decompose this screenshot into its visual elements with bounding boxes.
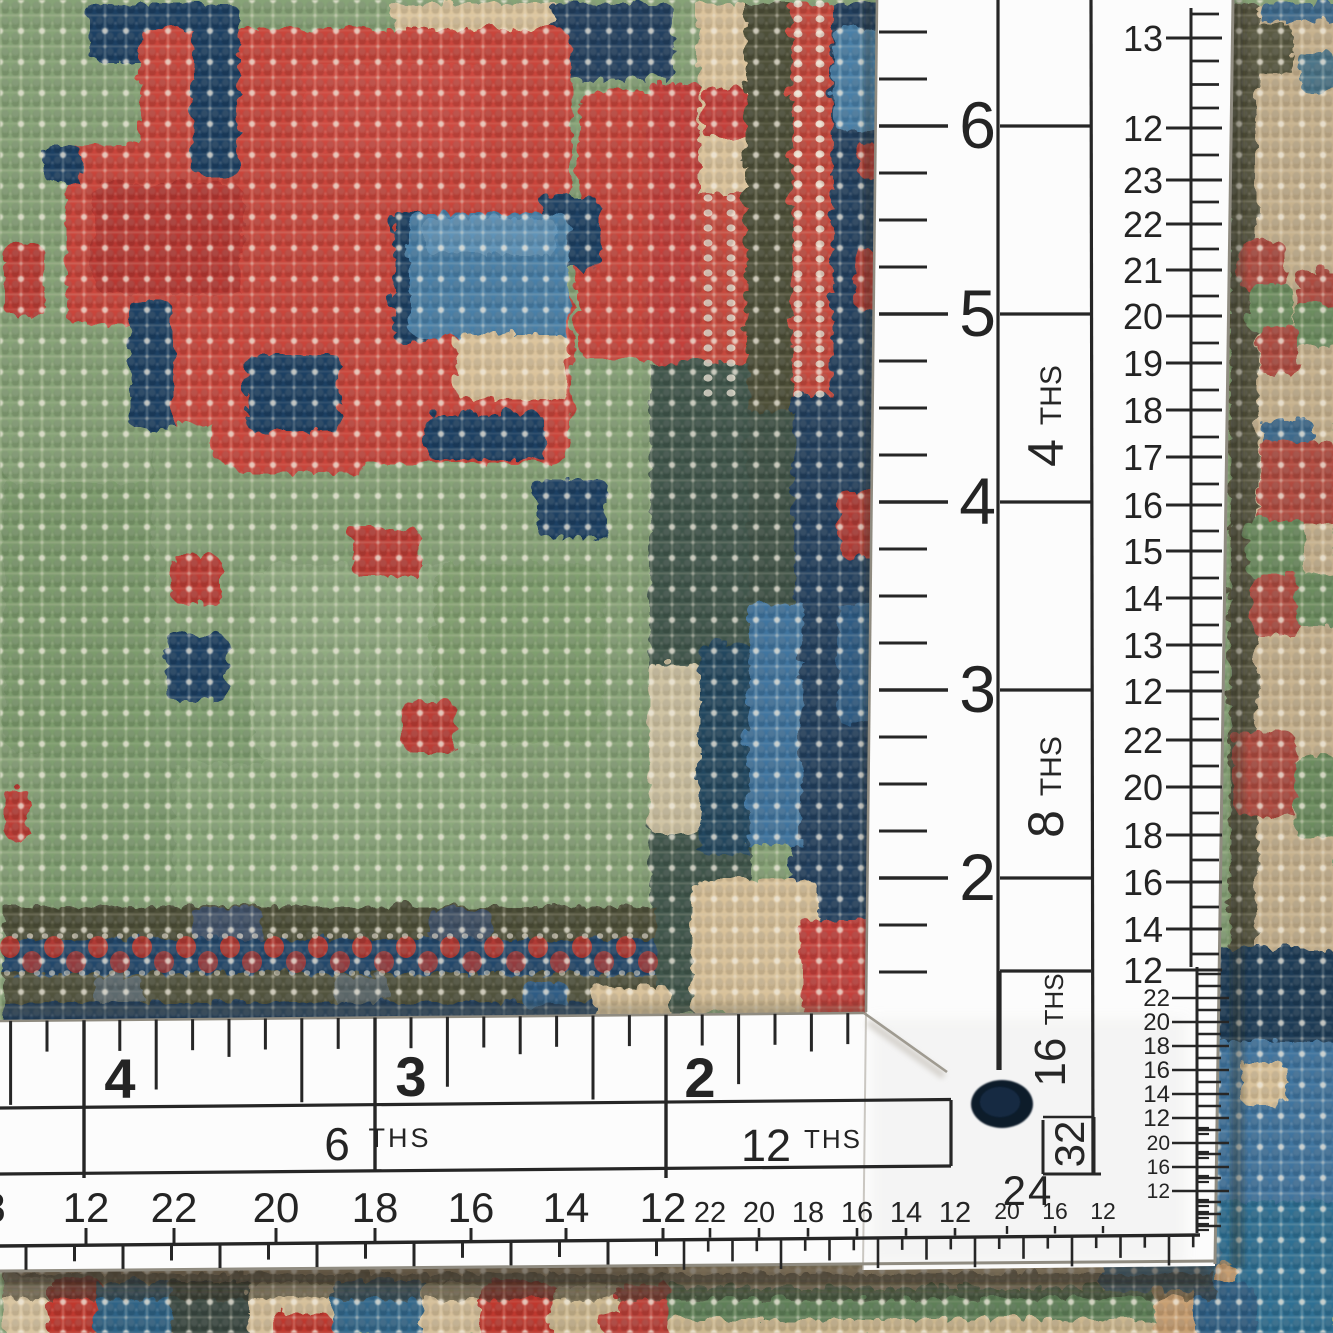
svg-text:14: 14 [1123, 578, 1163, 619]
svg-text:20: 20 [1143, 1009, 1170, 1036]
svg-text:22: 22 [1123, 204, 1163, 245]
svg-text:14: 14 [1123, 909, 1163, 950]
svg-text:18: 18 [352, 1184, 399, 1231]
svg-text:13: 13 [1123, 18, 1163, 59]
svg-text:THS: THS [369, 1123, 432, 1153]
svg-text:22: 22 [694, 1197, 726, 1229]
svg-text:18: 18 [792, 1197, 824, 1229]
svg-text:16: 16 [841, 1197, 873, 1229]
svg-text:6: 6 [324, 1118, 350, 1170]
svg-text:12: 12 [741, 1120, 791, 1171]
svg-text:19: 19 [1123, 343, 1163, 384]
svg-text:4: 4 [959, 464, 996, 538]
svg-text:8: 8 [0, 1184, 6, 1231]
svg-text:5: 5 [959, 276, 996, 350]
svg-text:16: 16 [1143, 1057, 1170, 1084]
svg-text:20: 20 [1123, 767, 1163, 808]
svg-text:20: 20 [1123, 296, 1163, 337]
svg-text:23: 23 [1123, 160, 1163, 201]
svg-text:12: 12 [1090, 1198, 1116, 1224]
svg-text:14: 14 [543, 1184, 590, 1231]
svg-text:18: 18 [1143, 1033, 1170, 1060]
svg-text:13: 13 [1123, 625, 1163, 666]
svg-text:20: 20 [1147, 1132, 1170, 1155]
svg-text:22: 22 [1123, 720, 1163, 761]
svg-text:12: 12 [939, 1197, 971, 1229]
svg-text:20: 20 [743, 1197, 775, 1229]
svg-text:22: 22 [151, 1184, 198, 1231]
svg-text:2: 2 [684, 1046, 715, 1109]
svg-text:16: 16 [1123, 485, 1163, 526]
svg-text:6: 6 [959, 88, 996, 162]
svg-text:12: 12 [63, 1184, 110, 1231]
svg-text:16: 16 [448, 1184, 495, 1231]
svg-text:THS: THS [804, 1124, 862, 1154]
svg-text:17: 17 [1123, 437, 1163, 478]
svg-text:4: 4 [104, 1047, 135, 1110]
svg-text:3: 3 [395, 1045, 426, 1108]
svg-text:20: 20 [253, 1184, 300, 1231]
svg-text:15: 15 [1123, 531, 1163, 572]
svg-text:12: 12 [1123, 108, 1163, 149]
svg-text:18: 18 [1123, 390, 1163, 431]
svg-text:12: 12 [1123, 671, 1163, 712]
svg-text:12: 12 [1143, 1105, 1170, 1132]
svg-text:3: 3 [959, 652, 996, 726]
svg-text:14: 14 [1143, 1081, 1170, 1108]
svg-text:16: 16 [1147, 1156, 1170, 1179]
svg-text:12: 12 [640, 1184, 687, 1231]
svg-text:32: 32 [1046, 1121, 1093, 1168]
svg-text:16: 16 [1123, 862, 1163, 903]
svg-text:21: 21 [1123, 250, 1163, 291]
svg-text:12: 12 [1147, 1180, 1170, 1203]
svg-text:2: 2 [959, 840, 996, 914]
svg-text:22: 22 [1143, 985, 1170, 1012]
svg-text:14: 14 [890, 1197, 922, 1229]
svg-text:18: 18 [1123, 815, 1163, 856]
